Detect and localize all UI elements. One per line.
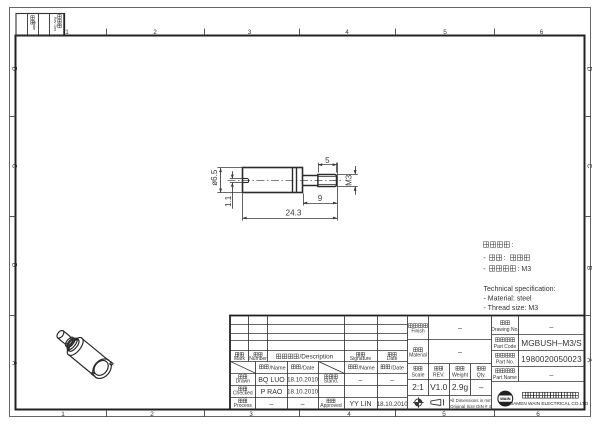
svg-text:/Date: /Date [32, 21, 37, 31]
svg-text:V1.0: V1.0 [430, 382, 448, 392]
svg-text:Number: Number [249, 356, 267, 362]
svg-text:/Date: /Date [301, 365, 314, 371]
svg-text:: M3: : M3 [518, 266, 532, 273]
svg-text:Finish: Finish [411, 329, 425, 335]
svg-text:6: 6 [540, 29, 544, 36]
svg-text:/Description: /Description [300, 354, 334, 361]
svg-text:–: – [458, 350, 462, 357]
svg-text:/Date: /Date [391, 365, 404, 371]
svg-text:- Thread size: M3: - Thread size: M3 [484, 303, 539, 312]
svg-text:Part Name: Part Name [493, 375, 517, 381]
svg-text:4: 4 [347, 411, 351, 418]
svg-text:5: 5 [442, 411, 446, 418]
svg-text:C: C [586, 164, 593, 169]
svg-text:A: A [586, 358, 593, 363]
svg-text:Drawing No.: Drawing No. [491, 327, 519, 333]
svg-text:Technical specification:: Technical specification: [484, 284, 556, 293]
svg-text:Signature: Signature [350, 356, 372, 362]
svg-text:6: 6 [536, 411, 540, 418]
svg-text:YY LIN: YY LIN [349, 401, 371, 408]
svg-text:B: B [586, 266, 593, 270]
svg-text:4: 4 [345, 29, 349, 36]
svg-text:24.3: 24.3 [286, 209, 302, 218]
svg-text:–: – [301, 401, 305, 408]
svg-text:P RAO: P RAO [261, 389, 283, 396]
svg-text:1.1: 1.1 [224, 195, 233, 207]
svg-text:REV.: REV. [433, 372, 445, 378]
svg-text:XIAMEN WAIN ELECTRICAL CO.LTD: XIAMEN WAIN ELECTRICAL CO.LTD [509, 401, 589, 406]
svg-text:18.10.2010: 18.10.2010 [287, 389, 319, 396]
svg-text:Qty.: Qty. [477, 372, 486, 378]
svg-text:5: 5 [443, 29, 447, 36]
svg-text:18.10.2010: 18.10.2010 [377, 401, 409, 408]
svg-text:Weight: Weight [452, 372, 469, 378]
svg-text:Mark: Mark [234, 356, 246, 362]
svg-text:C: C [11, 164, 18, 169]
svg-text:1: 1 [61, 411, 65, 418]
svg-text:3: 3 [249, 411, 253, 418]
svg-text::: : [512, 242, 514, 249]
svg-text:2:1: 2:1 [412, 382, 424, 392]
svg-text:–: – [479, 382, 484, 392]
svg-text:Part Code: Part Code [494, 344, 517, 350]
svg-text:Drawn: Drawn [236, 379, 251, 385]
svg-text:/Name: /Name [359, 365, 375, 371]
svg-text:Rev Des: Rev Des [53, 17, 57, 32]
svg-text:All Dimensions in mm: All Dimensions in mm [449, 398, 492, 403]
svg-text:9: 9 [318, 194, 323, 203]
svg-text:Date: Date [387, 356, 398, 362]
svg-text:Process: Process [234, 403, 253, 409]
svg-text:Checked: Checked [233, 391, 253, 397]
svg-text::: : [504, 255, 506, 262]
svg-text:MGBUSH–M3/S: MGBUSH–M3/S [521, 338, 582, 348]
svg-text:1: 1 [65, 29, 69, 36]
svg-text:D: D [586, 67, 593, 72]
svg-text:–: – [270, 401, 274, 408]
svg-text:2: 2 [153, 29, 157, 36]
svg-text:Part No.: Part No. [496, 360, 514, 366]
svg-text:BQ LUO: BQ LUO [258, 377, 285, 384]
svg-text:–: – [359, 377, 363, 384]
svg-text:ø6.5: ø6.5 [210, 169, 219, 186]
svg-text:–: – [550, 372, 554, 379]
svg-text:18.10.2010: 18.10.2010 [287, 377, 319, 384]
svg-text:B: B [11, 263, 18, 267]
svg-text:3: 3 [248, 29, 252, 36]
svg-text:–: – [458, 326, 462, 333]
svg-text:M3: M3 [345, 174, 354, 186]
svg-text:D: D [11, 67, 18, 72]
svg-text:Original Size DIN # 4: Original Size DIN # 4 [450, 404, 492, 409]
svg-text:5: 5 [325, 156, 330, 165]
svg-text:Stand.: Stand. [324, 379, 338, 385]
svg-text:2.9g: 2.9g [452, 382, 469, 392]
svg-text:1980020050023: 1980020050023 [521, 355, 582, 364]
svg-text:/Name: /Name [270, 365, 286, 371]
svg-text:A: A [11, 361, 18, 366]
svg-text:–: – [550, 324, 554, 331]
svg-text:Material: Material [409, 353, 427, 359]
svg-text:–: – [390, 377, 394, 384]
svg-text:Scale: Scale [412, 372, 425, 378]
svg-text:2: 2 [150, 411, 154, 418]
svg-text:Approved: Approved [320, 403, 342, 409]
svg-text:- Material: steel: - Material: steel [484, 293, 532, 302]
